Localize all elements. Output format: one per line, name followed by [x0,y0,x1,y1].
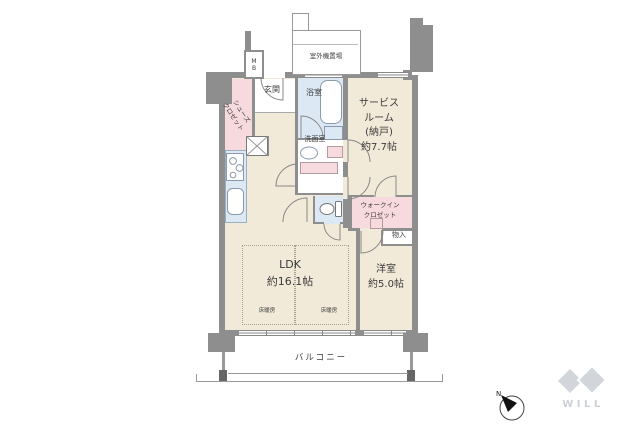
toilet-fixture [320,202,342,217]
balcony-rail-end-left [196,374,197,382]
balcony-stem-left [222,352,225,372]
balcony-rail-end-right [442,374,443,382]
door-hall-ldk [283,198,307,222]
pipe-space-box [247,137,268,156]
floor-plan: 室外機置場 MB [0,0,640,427]
logo-diamond-right [578,366,606,394]
door-toilet [324,224,340,240]
balcony-stem-right [410,352,413,372]
walkin-closet-label: ウォークイン クロゼット [349,201,411,221]
washroom-label: 洗面室 [298,135,332,145]
bathroom-label: 浴室 [299,87,329,98]
door-walkin-closet [375,176,396,197]
brand-logo-text: WILL [562,399,604,410]
washroom-sink [301,147,318,159]
balcony-column-left [208,333,235,352]
entrance-label: 玄関 [254,84,290,95]
brand-logo: WILL [556,364,612,410]
door-service-b [348,177,370,199]
door-western-room [361,231,383,253]
compass-north-label: N [496,390,501,398]
floor-heating-label-right: 床暖房 [314,308,344,316]
balcony-foot-left [219,370,227,381]
ldk-label: LDK 約16.1帖 [248,257,332,290]
balcony-foot-right [407,370,415,381]
door-washroom [276,164,298,186]
balcony-label: バルコニー [278,353,364,365]
kitchen-stove [227,154,244,181]
storage-label: 物入 [383,231,415,241]
compass: N [494,387,532,425]
balcony-column-right [403,333,428,352]
floor-heating-label-left: 床暖房 [252,308,282,316]
balcony-rail-outer [196,381,443,382]
western-room-label: 洋室 約5.0帖 [356,262,416,292]
balcony-rail-inner [228,373,408,374]
kitchen-sink [228,189,244,215]
compass-needle [501,395,517,412]
service-room-label: サービス ルーム (納戸) 約7.7帖 [346,97,412,155]
